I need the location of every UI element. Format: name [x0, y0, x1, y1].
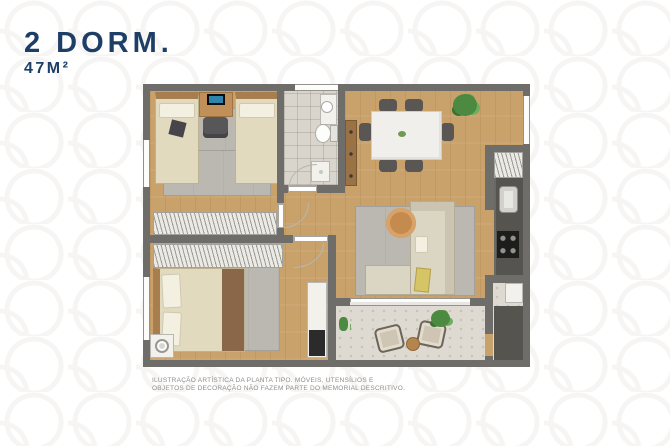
door-bathroom: [288, 186, 317, 192]
sideboard: [345, 120, 357, 186]
fridge: [494, 152, 523, 178]
floor-plan: [143, 84, 530, 367]
disclaimer-line-2: OBJETOS DE DECORAÇÃO NÃO FAZEM PARTE DO …: [152, 385, 405, 393]
pillow-left-bed: [159, 103, 195, 118]
service-counter: [494, 306, 523, 360]
disclaimer-line-1: ILUSTRAÇÃO ARTÍSTICA DA PLANTA TIPO. MÓV…: [152, 377, 405, 385]
plant-dining-corner: [453, 94, 477, 116]
kitchen-sink: [499, 186, 518, 213]
wall-balcony-a: [336, 298, 350, 306]
coffee-table: [386, 208, 416, 238]
page-title: 2 DORM.: [24, 28, 173, 58]
pillow-right-bed: [239, 103, 275, 118]
plant-balcony: [431, 310, 450, 327]
cooktop: [497, 231, 519, 258]
disclaimer: ILUSTRAÇÃO ARTÍSTICA DA PLANTA TIPO. MÓV…: [152, 377, 405, 393]
washer: [505, 283, 523, 303]
sink-basin: [321, 101, 333, 113]
monitor: [207, 94, 225, 105]
dining-table: [371, 111, 442, 160]
toilet-bowl: [315, 124, 331, 143]
tv: [309, 330, 325, 356]
sliding-door-balcony: [350, 298, 470, 306]
window-bedroom1: [143, 140, 150, 187]
plant-balcony-small: [339, 317, 348, 331]
balcony-table: [406, 337, 420, 351]
wall-service-west: [485, 283, 493, 334]
sofa-cushion: [415, 236, 428, 253]
decor-spiral: [155, 339, 169, 353]
door-bedroom2: [294, 236, 328, 242]
toilet-tank: [330, 125, 338, 142]
yellow-throw: [414, 267, 431, 292]
wall-bath-west: [277, 91, 284, 203]
wall-bath-east: [338, 91, 345, 193]
plan-header: 2 DORM. 47M²: [24, 28, 173, 78]
dining-chair-bottom-2: [405, 159, 423, 172]
window-bedroom2: [143, 277, 150, 340]
wall-outer-bottom: [143, 360, 530, 367]
dining-chair-right: [441, 123, 454, 141]
wall-service-west-stub: [485, 356, 493, 360]
wall-bedrooms-shared: [150, 235, 293, 243]
door-bedroom1: [278, 204, 284, 228]
dining-chair-bottom-1: [379, 159, 397, 172]
wall-service-north: [485, 275, 523, 283]
wardrobe-bedroom2: [153, 244, 283, 268]
double-bed-pillow-1: [161, 274, 182, 309]
wall-corner-stub: [328, 235, 336, 243]
window-bathroom: [295, 84, 338, 91]
wall-bedroom2-east: [328, 243, 336, 360]
desk-chair: [203, 117, 228, 138]
wall-bath-south-b: [317, 185, 345, 193]
wall-kitchen-west: [485, 145, 494, 210]
window-dining: [523, 96, 530, 144]
shower-drain: [319, 170, 323, 174]
area-label: 47M²: [24, 60, 173, 78]
balcony-floor: [336, 306, 485, 360]
wardrobe-bedroom1: [153, 212, 277, 235]
table-centerpiece: [398, 131, 406, 137]
sofa-chaise: [365, 265, 411, 295]
